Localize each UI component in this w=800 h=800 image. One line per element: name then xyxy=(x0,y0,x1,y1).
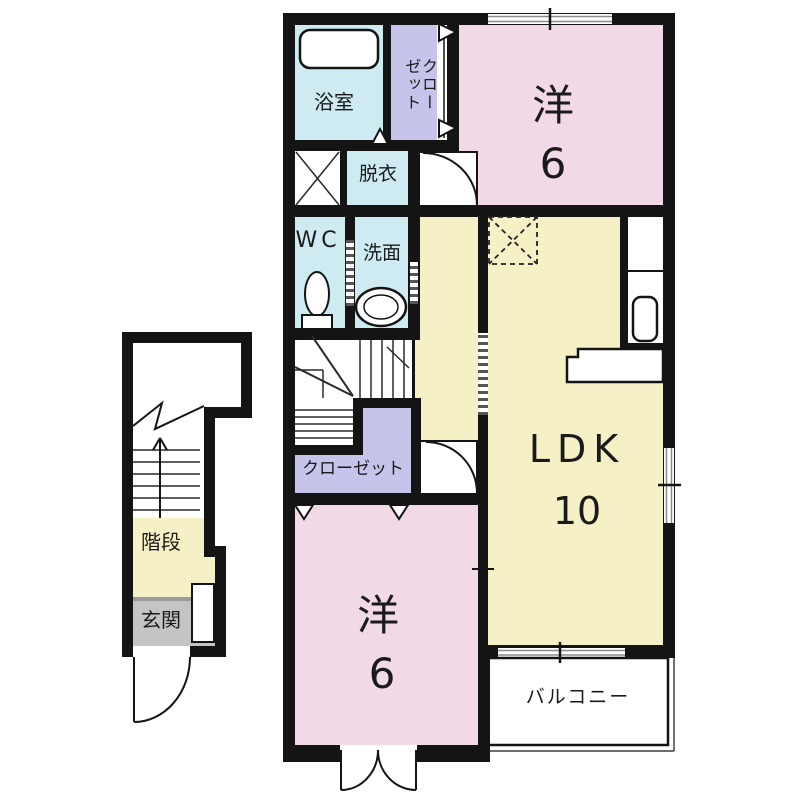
closet-top-door-strip xyxy=(437,25,447,140)
kitchen-counter-column xyxy=(628,217,663,347)
stairs-2f-upper xyxy=(295,340,413,398)
wall-segment xyxy=(204,407,215,557)
entrance-label: 玄関 xyxy=(121,610,201,631)
french-door-opening xyxy=(340,745,417,762)
western-room-top-label: 洋 xyxy=(513,84,593,128)
ldk-size: 10 xyxy=(497,492,657,532)
wall-segment xyxy=(283,13,295,762)
wall-segment xyxy=(283,493,487,505)
wall-segment xyxy=(478,645,675,658)
floor-plan: 浴室 クロー ゼット 洋 6 脱衣 WC 洗面 クローゼット LDK 10 洋 … xyxy=(0,0,800,800)
washroom-label: 洗面 xyxy=(342,244,422,264)
washer-space xyxy=(295,151,340,206)
sliding-door-ldk xyxy=(478,333,488,415)
wall-segment xyxy=(478,650,490,762)
entrance-door-opening xyxy=(133,646,190,657)
wall-segment xyxy=(122,332,133,657)
closet-top-label-line1: クロー xyxy=(419,30,436,140)
hallway xyxy=(413,217,478,440)
wall-segment xyxy=(447,13,459,151)
entrance-door-arc xyxy=(134,657,190,722)
wall-segment xyxy=(215,407,252,418)
door-swing-area-bottom xyxy=(421,440,478,495)
wall-segment xyxy=(283,328,420,340)
wall-segment xyxy=(122,332,252,343)
stairs-1f xyxy=(133,407,204,518)
balcony-label: バルコニー xyxy=(498,688,658,708)
bathroom-label: 浴室 xyxy=(294,92,374,113)
stair-rail xyxy=(412,340,415,398)
kitchen-divider-wall xyxy=(620,343,663,355)
wall-segment xyxy=(283,445,363,455)
room-washroom xyxy=(355,217,408,328)
wall-segment xyxy=(241,332,252,418)
entrance-step-edge xyxy=(133,597,191,601)
wall-segment xyxy=(215,546,226,657)
wall-segment xyxy=(383,25,391,151)
stairs-2f-lower xyxy=(295,398,353,445)
western-room-top-size: 6 xyxy=(513,142,593,186)
western-room-bottom-size: 6 xyxy=(340,652,424,696)
ldk-label: LDK xyxy=(497,430,657,470)
closet-top-label: クロー ゼット xyxy=(392,30,436,140)
western-room-bottom-label: 洋 xyxy=(338,594,418,638)
wall-segment xyxy=(663,13,675,658)
sliding-door-washroom xyxy=(410,262,418,304)
dressing-label: 脱衣 xyxy=(338,165,418,185)
room-bathroom xyxy=(295,25,391,145)
door-swing-area-top xyxy=(418,151,478,207)
wall-segment xyxy=(283,140,447,151)
wall-segment xyxy=(620,217,628,347)
stairwell-1f-void xyxy=(133,343,241,407)
closet-2f-label: クローゼット xyxy=(290,461,416,479)
wall-segment xyxy=(283,13,675,25)
closet-top-label-line2: ゼット xyxy=(402,30,419,140)
wall-segment xyxy=(478,205,488,650)
stairs-label: 階段 xyxy=(121,532,201,553)
